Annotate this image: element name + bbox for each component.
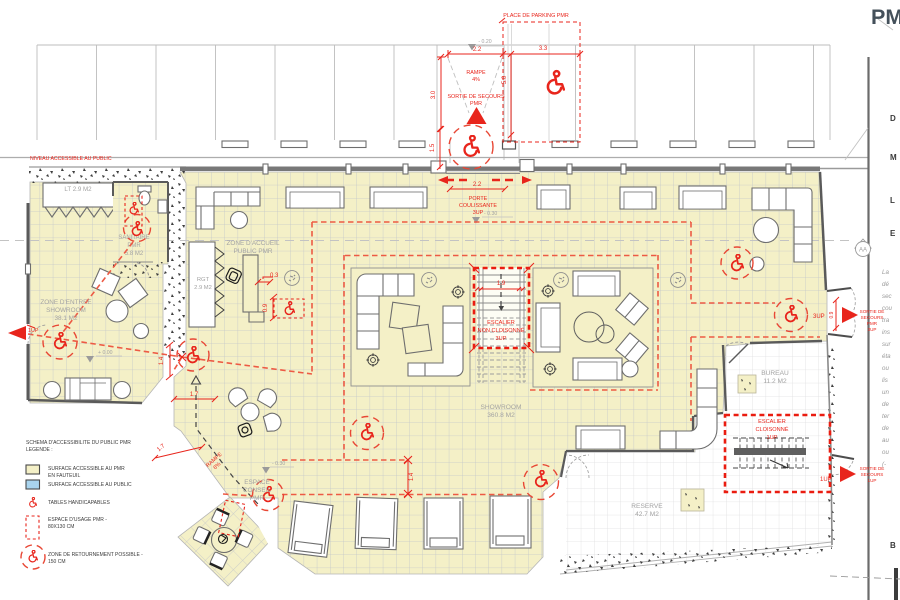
svg-text:4%: 4% bbox=[472, 77, 480, 83]
svg-text:5.8 M2: 5.8 M2 bbox=[125, 251, 144, 257]
svg-text:BUREAU: BUREAU bbox=[761, 370, 789, 377]
svg-text:ou: ou bbox=[882, 449, 889, 456]
svg-text:ESCALIER: ESCALIER bbox=[487, 320, 515, 326]
svg-text:COULISSANTE: COULISSANTE bbox=[459, 203, 497, 209]
svg-text:PMR: PMR bbox=[867, 321, 878, 326]
svg-text:1UP: 1UP bbox=[28, 328, 39, 334]
svg-text:(-: (- bbox=[882, 461, 886, 468]
svg-text:ZONE DE RETOURNEMENT POSSIBLE: ZONE DE RETOURNEMENT POSSIBLE - bbox=[48, 552, 143, 558]
svg-text:PMR: PMR bbox=[470, 101, 482, 107]
svg-text:sur: sur bbox=[882, 341, 892, 348]
svg-text:RESERVE: RESERVE bbox=[631, 503, 663, 510]
svg-text:SHOWROOM: SHOWROOM bbox=[46, 307, 86, 314]
svg-text:RGT: RGT bbox=[197, 277, 210, 283]
svg-text:PLACE DE PARKING PMR: PLACE DE PARKING PMR bbox=[503, 13, 569, 19]
svg-text:3UP: 3UP bbox=[473, 210, 484, 216]
svg-text:M: M bbox=[890, 153, 897, 162]
svg-text:SURFACE ACCESSIBLE AU PMR: SURFACE ACCESSIBLE AU PMR bbox=[48, 466, 125, 472]
svg-text:NIVEAU ACCESSIBLE AU PUBLIC: NIVEAU ACCESSIBLE AU PUBLIC bbox=[30, 156, 112, 162]
svg-text:1.5: 1.5 bbox=[430, 143, 436, 152]
svg-text:3UP: 3UP bbox=[868, 327, 877, 332]
svg-text:1UP: 1UP bbox=[820, 477, 832, 483]
svg-text:2.2: 2.2 bbox=[473, 47, 482, 53]
svg-text:0.3: 0.3 bbox=[270, 273, 279, 279]
svg-text:SECOURS: SECOURS bbox=[861, 472, 884, 477]
svg-text:RAMPE: RAMPE bbox=[466, 70, 486, 76]
svg-text:un: un bbox=[882, 389, 889, 396]
svg-text:TABLES HANDICAPABLES: TABLES HANDICAPABLES bbox=[48, 500, 110, 506]
svg-text:LT 2.9 M2: LT 2.9 M2 bbox=[64, 186, 92, 193]
svg-text:LEGENDE :: LEGENDE : bbox=[26, 447, 53, 453]
svg-text:2.9 M2: 2.9 M2 bbox=[194, 285, 212, 291]
svg-text:dé: dé bbox=[882, 281, 889, 288]
svg-text:EN FAUTEUIL: EN FAUTEUIL bbox=[48, 473, 80, 479]
svg-text:150 CM: 150 CM bbox=[48, 559, 66, 565]
svg-text:2.2: 2.2 bbox=[473, 182, 482, 188]
svg-text:ZONE D'ENTREE: ZONE D'ENTREE bbox=[40, 299, 91, 306]
svg-text:SORTIE DE: SORTIE DE bbox=[860, 466, 885, 471]
svg-text:lis: lis bbox=[882, 377, 888, 384]
svg-text:1UP: 1UP bbox=[868, 478, 877, 483]
svg-text:CLOISONNÉ: CLOISONNÉ bbox=[756, 426, 789, 433]
svg-text:1UP: 1UP bbox=[767, 435, 778, 441]
svg-text:B: B bbox=[890, 541, 896, 550]
svg-text:- 0.30: - 0.30 bbox=[272, 461, 285, 467]
svg-text:ESPACE: ESPACE bbox=[244, 479, 269, 486]
svg-text:SANITAIRE: SANITAIRE bbox=[118, 235, 149, 241]
svg-text:éta: éta bbox=[882, 353, 891, 360]
svg-text:3UP: 3UP bbox=[813, 314, 825, 320]
svg-text:3.3: 3.3 bbox=[539, 46, 548, 52]
svg-text:11.2 M2: 11.2 M2 bbox=[763, 378, 787, 385]
svg-text:0.9: 0.9 bbox=[829, 311, 835, 318]
svg-text:360.8 M2: 360.8 M2 bbox=[487, 412, 515, 419]
svg-text:1.4: 1.4 bbox=[159, 356, 165, 365]
svg-text:0.9: 0.9 bbox=[263, 303, 269, 312]
svg-text:38.1 M2: 38.1 M2 bbox=[54, 315, 78, 322]
svg-text:PORTE: PORTE bbox=[469, 196, 488, 202]
svg-text:de: de bbox=[882, 401, 889, 408]
svg-text:PM: PM bbox=[871, 5, 900, 29]
svg-text:au: au bbox=[882, 437, 889, 444]
svg-text:- 0.20: - 0.20 bbox=[478, 39, 491, 45]
svg-text:NON CLOISONNÉ: NON CLOISONNÉ bbox=[478, 327, 525, 334]
svg-text:L: L bbox=[890, 196, 895, 205]
svg-text:- 0.30: - 0.30 bbox=[484, 211, 497, 217]
svg-text:cou: cou bbox=[882, 305, 893, 312]
svg-text:SHOWROOM: SHOWROOM bbox=[480, 404, 521, 411]
svg-text:ESCALIER: ESCALIER bbox=[758, 419, 786, 425]
svg-text:sec: sec bbox=[882, 293, 893, 300]
svg-text:SECOURS: SECOURS bbox=[861, 315, 884, 320]
svg-text:SORTIE DE: SORTIE DE bbox=[860, 309, 885, 314]
svg-text:1.4: 1.4 bbox=[409, 472, 415, 481]
svg-text:ter: ter bbox=[882, 413, 890, 420]
svg-text:3UP: 3UP bbox=[496, 336, 507, 342]
svg-text:ZONE D'ACCUEIL: ZONE D'ACCUEIL bbox=[226, 240, 280, 247]
svg-text:AA: AA bbox=[859, 248, 867, 254]
svg-text:1.7: 1.7 bbox=[190, 392, 199, 398]
svg-text:1.9: 1.9 bbox=[497, 281, 506, 287]
svg-text:+ 0.00: + 0.00 bbox=[98, 350, 113, 356]
svg-text:3.0: 3.0 bbox=[431, 90, 437, 99]
svg-text:ins: ins bbox=[882, 329, 890, 336]
svg-text:PUBLIC PMR: PUBLIC PMR bbox=[233, 248, 272, 255]
svg-text:tra: tra bbox=[882, 317, 890, 324]
svg-text:80X130 CM: 80X130 CM bbox=[48, 524, 74, 530]
svg-text:ou: ou bbox=[882, 365, 889, 372]
svg-text:SORTIE DE SECOURS: SORTIE DE SECOURS bbox=[447, 94, 505, 100]
svg-text:D: D bbox=[890, 114, 896, 123]
svg-text:de: de bbox=[882, 425, 889, 432]
svg-text:E: E bbox=[890, 229, 896, 238]
svg-text:SURFACE ACCESSIBLE AU PUBLIC: SURFACE ACCESSIBLE AU PUBLIC bbox=[48, 482, 132, 488]
svg-text:La: La bbox=[882, 269, 889, 276]
svg-text:42.7 M2: 42.7 M2 bbox=[635, 511, 659, 518]
svg-text:CONSEIL: CONSEIL bbox=[243, 487, 272, 494]
svg-text:ESPACE D'USAGE PMR -: ESPACE D'USAGE PMR - bbox=[48, 517, 107, 523]
svg-text:5.0: 5.0 bbox=[502, 75, 508, 84]
svg-text:SCHEMA D'ACCESSIBILITE DU PUBL: SCHEMA D'ACCESSIBILITE DU PUBLIC PMR bbox=[26, 440, 131, 446]
